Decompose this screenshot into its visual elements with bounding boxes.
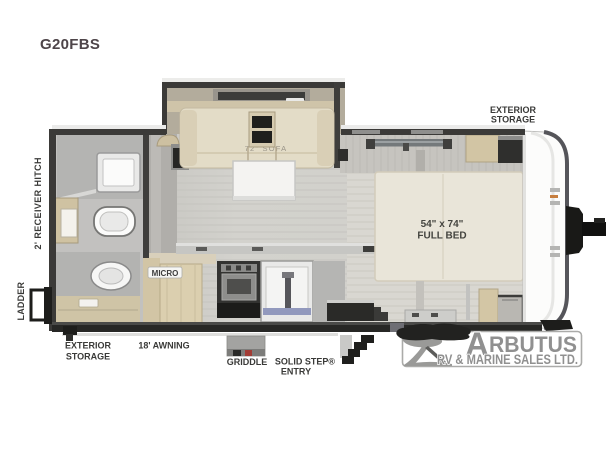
svg-text:SOLID STEP®: SOLID STEP® [275, 357, 336, 367]
svg-text:LADDER: LADDER [16, 282, 26, 321]
svg-text:54" x 74": 54" x 74" [421, 219, 464, 230]
svg-text:18' AWNING: 18' AWNING [138, 341, 189, 351]
svg-text:EXTERIOR: EXTERIOR [490, 105, 537, 115]
svg-text:MICRO: MICRO [152, 269, 179, 278]
svg-text:STORAGE: STORAGE [66, 352, 110, 362]
svg-text:STORAGE: STORAGE [491, 115, 535, 125]
svg-text:2' RECEIVER HITCH: 2' RECEIVER HITCH [33, 157, 43, 249]
svg-text:ENTRY: ENTRY [281, 367, 311, 377]
svg-text:G20FBS: G20FBS [40, 36, 100, 53]
svg-text:EXTERIOR: EXTERIOR [65, 341, 112, 351]
svg-text:GRIDDLE: GRIDDLE [227, 357, 268, 367]
svg-text:FULL BED: FULL BED [417, 231, 466, 242]
svg-text:RV & MARINE SALES LTD.: RV & MARINE SALES LTD. [437, 351, 578, 367]
